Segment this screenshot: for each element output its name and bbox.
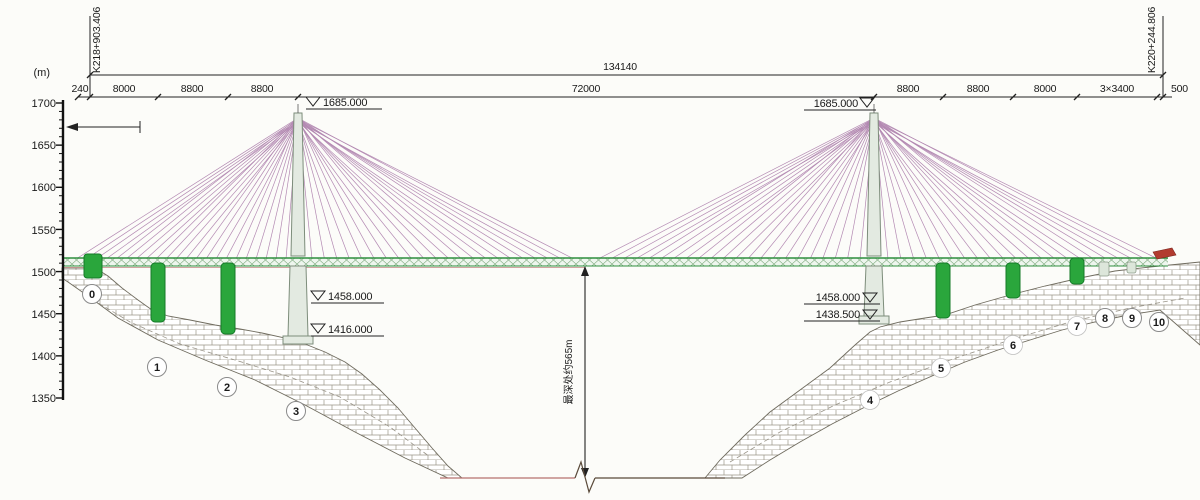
axis-tick-1400: 1400 [32,351,56,363]
pier-5 [936,263,950,318]
svg-text:7: 7 [1074,321,1080,333]
dimension-segments: 240 8000 8800 8800 72000 8800 8800 8000 … [72,83,1189,100]
pier-2 [221,263,235,334]
valley-depth-label: 最深处约565m [562,339,575,404]
reference-arrow [66,121,140,133]
marker-left-tower-top: 1685.000 [306,97,382,109]
arrowhead-left [66,123,78,131]
abutment-0 [84,254,102,278]
seg-240: 240 [72,83,89,95]
seg-8800-r1: 8800 [897,83,920,95]
svg-text:10: 10 [1153,317,1165,329]
marker-right-tower-top: 1685.000 [804,98,876,110]
seg-72000: 72000 [572,83,601,95]
svg-text:9: 9 [1129,313,1135,325]
pier-6 [1006,263,1020,298]
elevation-markers: 1685.000 1685.000 1458.000 1416.000 1458… [306,97,880,336]
segment-labels: 240 8000 8800 8800 72000 8800 8800 8000 … [72,83,1189,95]
left-tower-top-elevation: 1685.000 [323,97,367,109]
pier-label-10: 10 [1150,313,1169,332]
pier-label-9: 9 [1123,309,1142,328]
station-label-right: K220+244.806 [1146,7,1158,74]
seg-500: 500 [1171,83,1188,95]
bridge-elevation-drawing: (m) 1700 1650 1600 1550 1500 1450 1400 1… [0,0,1200,500]
axis-tick-1700: 1700 [32,98,56,110]
station-label-left: K218+903.406 [91,7,103,74]
pier-1 [151,263,165,322]
ground-left-slope [62,268,462,478]
axis-tick-1550: 1550 [32,225,56,237]
svg-text:1: 1 [154,362,160,374]
pier-label-3: 3 [287,402,306,421]
svg-text:0: 0 [89,289,95,301]
left-tower-foundation [283,336,313,344]
axis-tick-1500: 1500 [32,267,56,279]
valley-depth-dimension: 最深处约565m [562,266,589,478]
pier-label-4: 4 [861,391,880,410]
pier-label-7: 7 [1068,317,1087,336]
drawing-canvas: (m) 1700 1650 1600 1550 1500 1450 1400 1… [0,0,1200,500]
right-tower-top-elevation: 1685.000 [814,98,858,110]
pier-label-0: 0 [83,285,102,304]
right-foundation-elevation: 1438.500 [816,309,860,321]
svg-text:8: 8 [1102,313,1108,325]
svg-text:4: 4 [867,395,874,407]
pier-7 [1070,258,1084,284]
axis-tick-1450: 1450 [32,309,56,321]
seg-8800-r2: 8800 [967,83,990,95]
deck-end-red-marker [1153,248,1176,259]
right-cap-elevation: 1458.000 [816,292,860,304]
seg-8000-l: 8000 [113,83,136,95]
svg-text:5: 5 [938,363,944,375]
axis-tick-1600: 1600 [32,182,56,194]
axis-unit-label: (m) [34,67,51,79]
pier-label-1: 1 [148,358,167,377]
seg-3x3400: 3×3400 [1100,83,1134,95]
svg-text:2: 2 [224,382,230,394]
ground-right-slope [705,262,1200,478]
stay-cables [76,118,1158,259]
seg-8800-l1: 8800 [181,83,204,95]
pier-9 [1127,262,1136,273]
valley-floor-line [440,462,725,492]
right-tower-foundation [859,316,889,324]
seg-8000-r: 8000 [1034,83,1057,95]
total-length-label: 134140 [603,61,637,73]
pier-label-8: 8 [1096,309,1115,328]
pier-label-5: 5 [932,359,951,378]
left-foundation-elevation: 1416.000 [328,324,372,336]
marker-left-foundation: 1416.000 [311,324,384,336]
seg-8800-l2: 8800 [251,83,274,95]
axis-tick-1350: 1350 [32,393,56,405]
dimension-total: 134140 [87,61,1166,78]
svg-text:3: 3 [293,406,299,418]
axis-tick-1650: 1650 [32,140,56,152]
left-cap-elevation: 1458.000 [328,291,372,303]
pier-8 [1099,262,1109,276]
elevation-axis: (m) 1700 1650 1600 1550 1500 1450 1400 1… [32,67,63,405]
marker-left-cap: 1458.000 [311,291,384,303]
pier-label-2: 2 [218,378,237,397]
pier-label-6: 6 [1004,336,1023,355]
svg-text:6: 6 [1010,340,1016,352]
